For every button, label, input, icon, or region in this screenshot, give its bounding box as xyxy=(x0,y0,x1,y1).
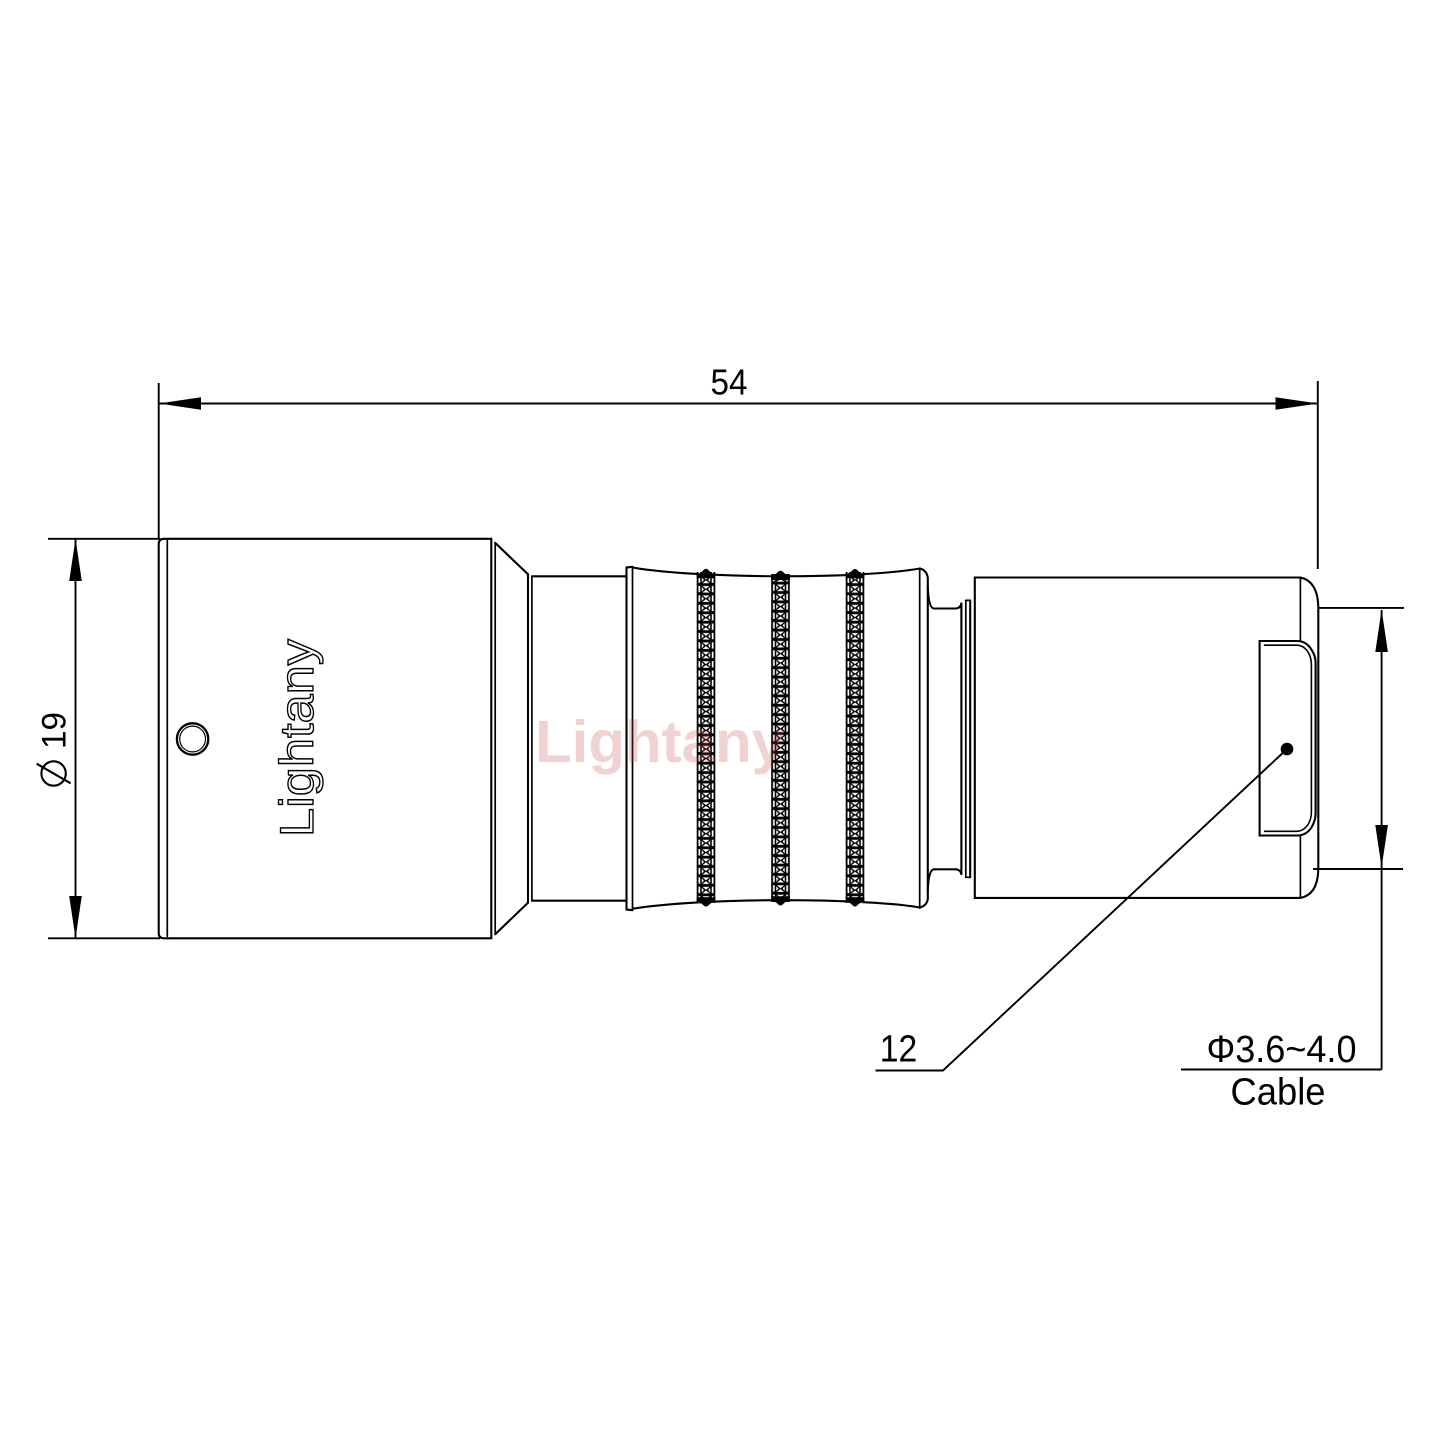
svg-text:Cable: Cable xyxy=(1231,1072,1326,1114)
svg-text:54: 54 xyxy=(711,362,748,403)
svg-text:19: 19 xyxy=(36,712,74,749)
svg-text:Lightany: Lightany xyxy=(535,709,785,775)
svg-text:Lightany: Lightany xyxy=(270,638,323,837)
svg-text:Φ3.6~4.0: Φ3.6~4.0 xyxy=(1207,1029,1357,1071)
svg-text:12: 12 xyxy=(880,1029,918,1071)
